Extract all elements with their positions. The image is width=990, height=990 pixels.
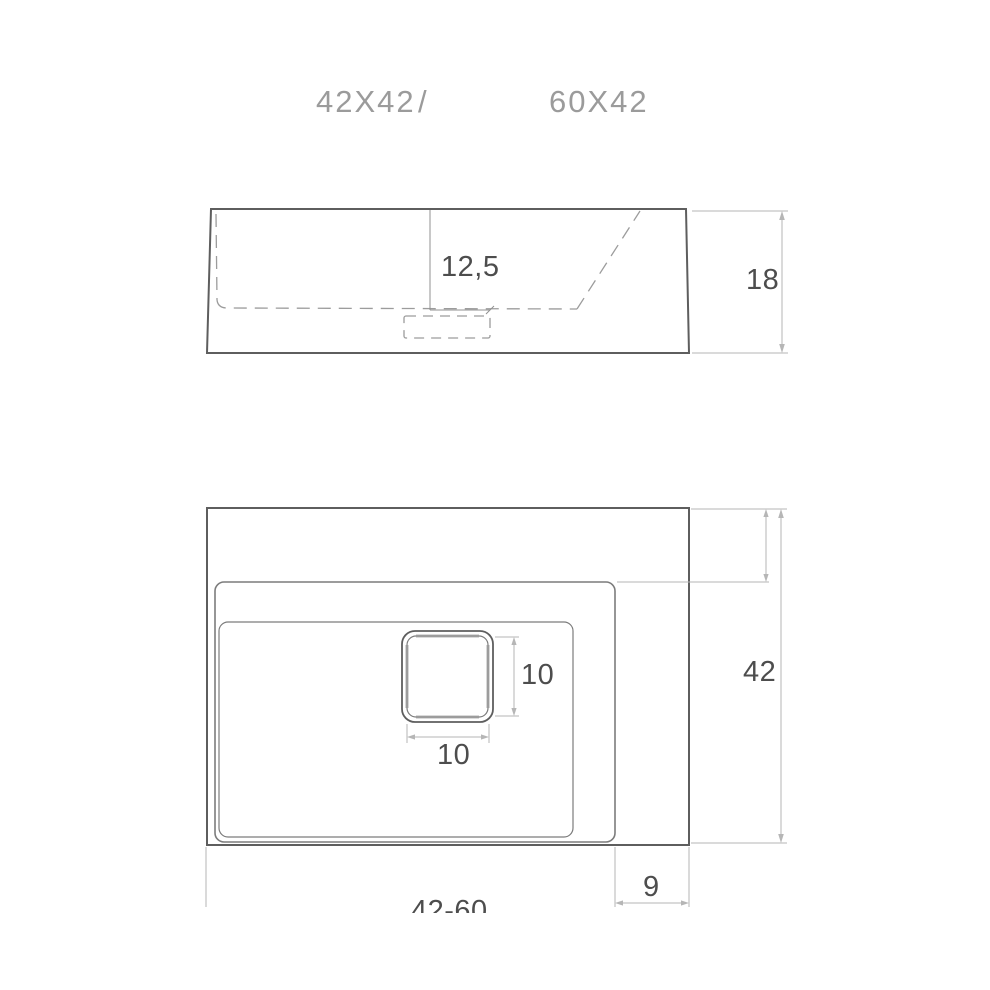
side-drain-dashed (404, 316, 490, 338)
drain-w-arrow-right (481, 734, 489, 739)
height-arrow-down (779, 344, 785, 353)
side-deck-arrow-right (681, 900, 689, 905)
drain-height-label: 10 (521, 661, 554, 690)
rear-deck-arrow-up (763, 509, 768, 517)
height-arrow-up (779, 211, 785, 220)
drawing-linework (0, 0, 990, 990)
side-basin-depth-label: 12,5 (441, 253, 499, 282)
rear-deck-arrow-down (763, 574, 768, 582)
plan-depth-arrow-down (778, 834, 784, 843)
drain-h-arrow-up (511, 637, 516, 645)
drain-height-dimension (495, 637, 519, 716)
plan-width-range-text: 42-60 (411, 897, 488, 913)
side-deck-arrow-left (615, 900, 623, 905)
title-size-right: 60X42 (549, 86, 649, 117)
plan-rim-outline (215, 582, 615, 842)
plan-side-deck-label: 9 (643, 873, 660, 902)
drain-h-arrow-down (511, 708, 516, 716)
plan-depth-label: 42 (743, 658, 776, 687)
plan-outer-outline (207, 508, 689, 845)
washbasin-technical-drawing: 42X42 / 60X42 12,5 18 10 10 42 9 42-60 (0, 0, 990, 990)
plan-width-range-label: 42-60 (411, 897, 488, 913)
title-size-left: 42X42 (316, 86, 416, 117)
title-separator: / (418, 86, 429, 117)
plan-drain (402, 631, 493, 722)
drain-w-arrow-left (407, 734, 415, 739)
plan-view (206, 508, 787, 907)
plan-basin-outline (219, 622, 573, 837)
side-height-label: 18 (746, 266, 779, 295)
plan-depth-arrow-up (778, 509, 784, 518)
side-basin-ramp-dashed (577, 211, 640, 309)
drain-width-label: 10 (437, 741, 470, 770)
drain-outer (402, 631, 493, 722)
side-basin-bottom-dashed (217, 300, 577, 309)
drain-inner (407, 636, 488, 717)
plan-rear-deck-dimension (617, 509, 769, 582)
side-basin-left-wall-dashed (216, 214, 217, 300)
